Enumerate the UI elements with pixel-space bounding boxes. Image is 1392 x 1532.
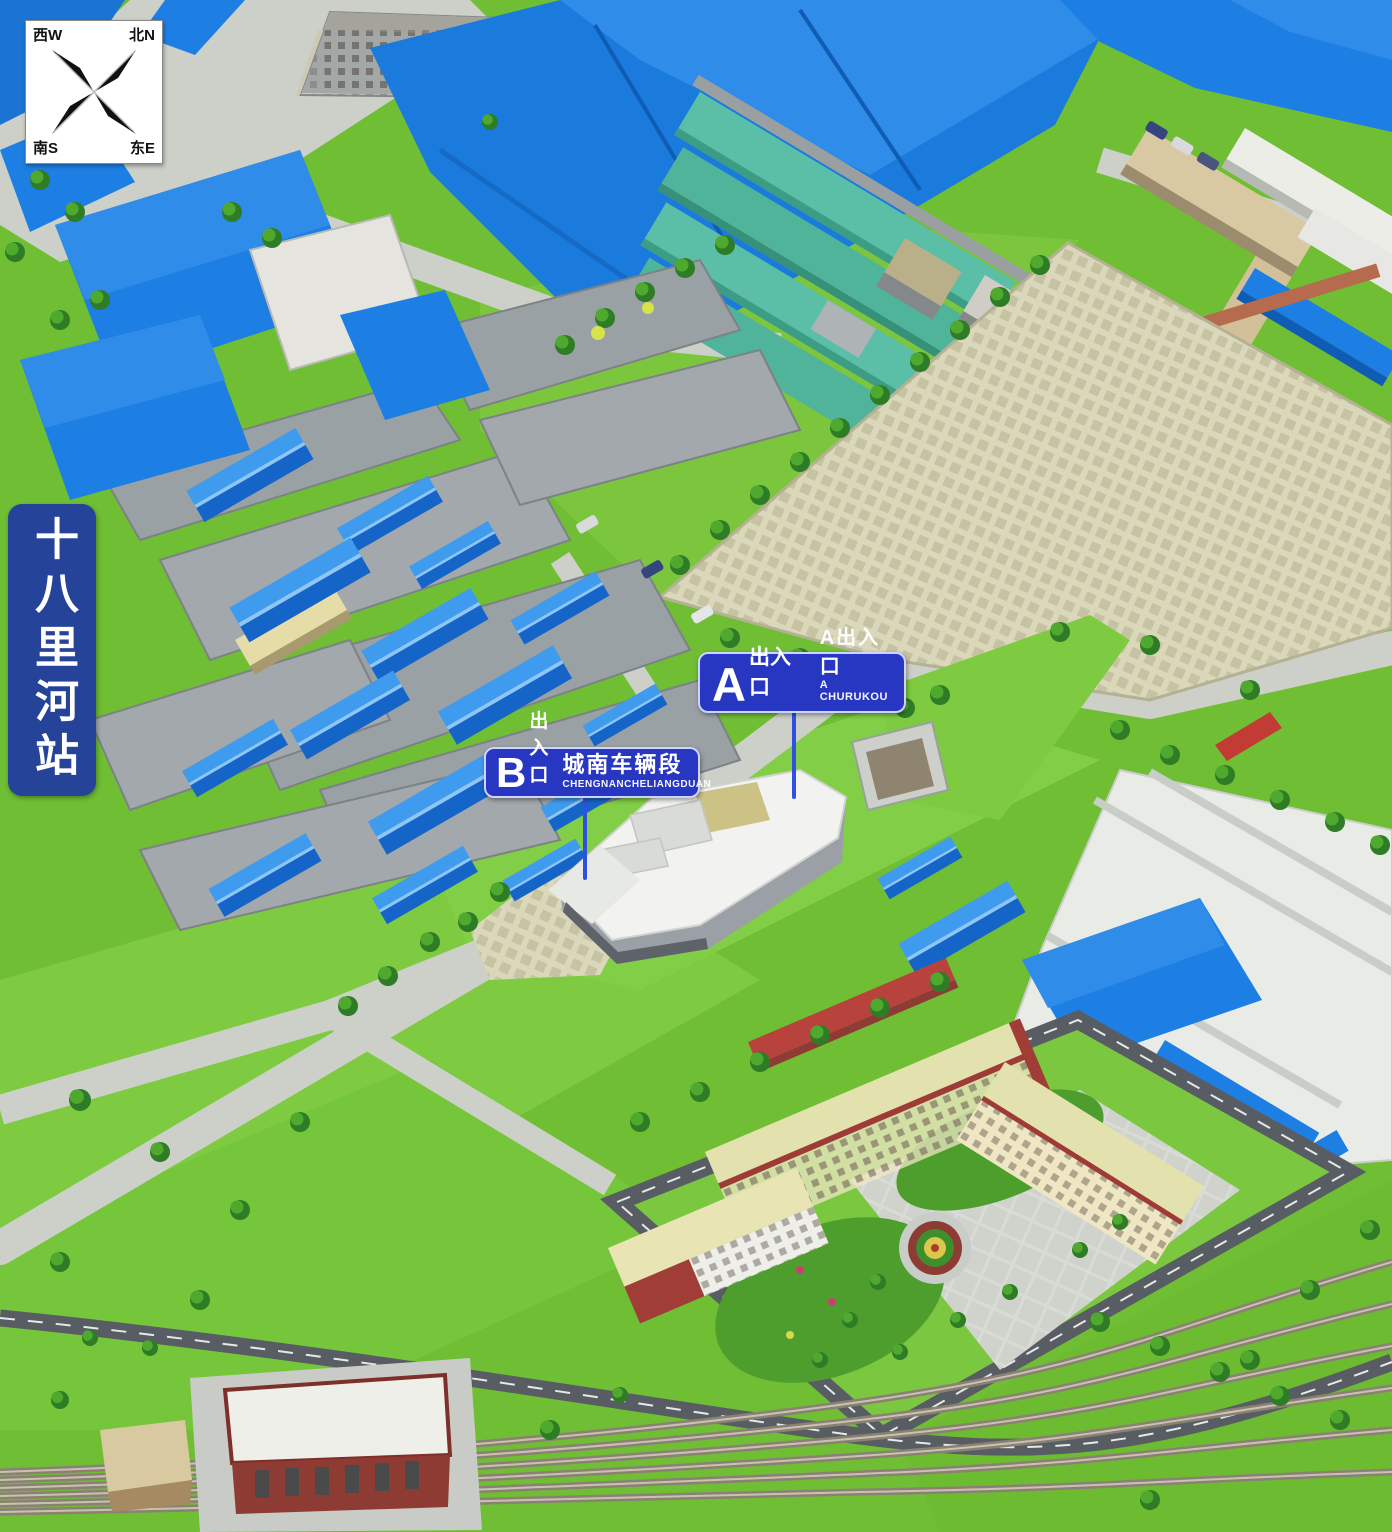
entrance-b-sign[interactable]: B 出入口 城南车辆段 CHENGNANCHELIANGDUAN bbox=[484, 747, 700, 798]
station-area-map: 西W 北N 南S 东E 十八里河站 A 出入口 A出入口 A CHURUKOU … bbox=[0, 0, 1392, 1532]
entrance-a-name-en: A CHURUKOU bbox=[820, 679, 894, 703]
entrance-a-sign[interactable]: A 出入口 A出入口 A CHURUKOU bbox=[698, 652, 906, 713]
entrance-b-name-cn: 城南车辆段 bbox=[562, 747, 711, 779]
entrance-b-suffix: 出入口 bbox=[529, 706, 548, 787]
compass-west-label: 西W bbox=[33, 28, 62, 43]
compass-south-label: 南S bbox=[33, 141, 58, 156]
entrance-a-name-cn: A出入口 bbox=[820, 621, 894, 679]
station-name-text: 十八里河站 bbox=[20, 514, 84, 786]
station-name-plate: 十八里河站 bbox=[8, 504, 96, 796]
entrance-a-leader-line bbox=[792, 711, 796, 799]
entrance-b-name-en: CHENGNANCHELIANGDUAN bbox=[562, 779, 711, 790]
entrance-b-letter: B bbox=[496, 755, 526, 791]
compass-east-label: 东E bbox=[130, 141, 155, 156]
compass-north-label: 北N bbox=[129, 28, 155, 43]
entrance-b-leader-line bbox=[583, 796, 587, 880]
compass-rose: 西W 北N 南S 东E bbox=[25, 20, 163, 164]
entrance-a-letter: A bbox=[712, 665, 746, 705]
entrance-a-suffix: 出入口 bbox=[749, 641, 806, 701]
compass-pinwheel-icon bbox=[44, 42, 144, 142]
fountain bbox=[899, 1212, 971, 1284]
